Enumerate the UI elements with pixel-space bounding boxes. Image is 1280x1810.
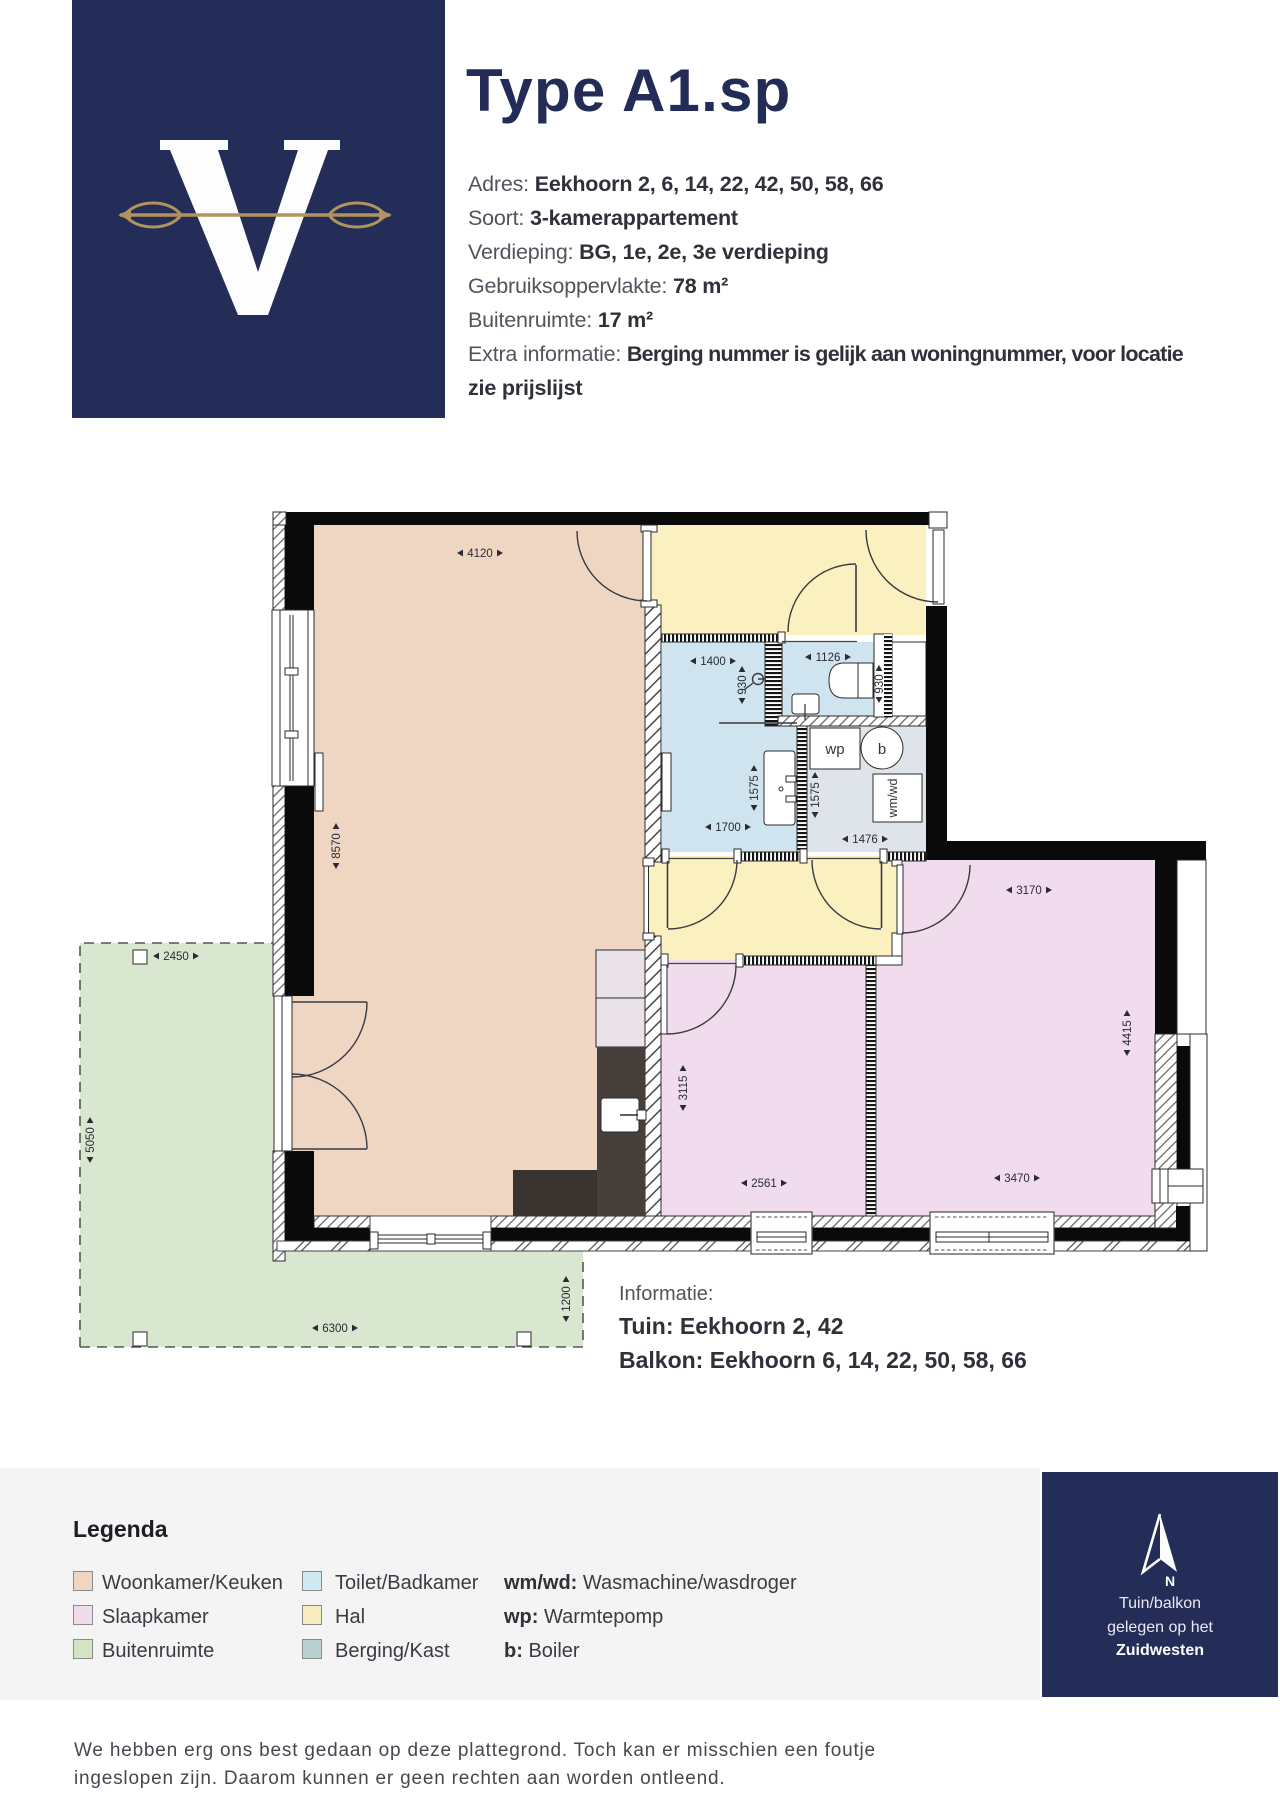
svg-text:1476: 1476 xyxy=(852,834,878,846)
svg-text:8570: 8570 xyxy=(331,833,343,859)
svg-text:3115: 3115 xyxy=(678,1076,690,1101)
svg-text:1200: 1200 xyxy=(561,1286,573,1312)
svg-text:2561: 2561 xyxy=(751,1178,777,1190)
svg-text:930: 930 xyxy=(737,675,749,694)
svg-text:N: N xyxy=(1165,1573,1175,1589)
svg-text:3470: 3470 xyxy=(1004,1173,1030,1185)
svg-text:4415: 4415 xyxy=(1122,1020,1134,1046)
svg-text:b: b xyxy=(878,741,886,758)
svg-text:5050: 5050 xyxy=(85,1127,97,1153)
svg-text:1126: 1126 xyxy=(816,652,841,664)
svg-text:930: 930 xyxy=(874,674,886,693)
svg-text:6300: 6300 xyxy=(322,1323,348,1335)
svg-text:4120: 4120 xyxy=(467,548,493,560)
svg-text:1575: 1575 xyxy=(810,782,822,808)
svg-text:3170: 3170 xyxy=(1016,885,1042,897)
svg-text:2450: 2450 xyxy=(163,951,189,963)
svg-text:1700: 1700 xyxy=(715,822,741,834)
svg-text:1575: 1575 xyxy=(749,775,761,801)
svg-text:wp: wp xyxy=(824,741,844,758)
svg-text:wm/wd: wm/wd xyxy=(886,779,900,819)
svg-text:1400: 1400 xyxy=(700,656,726,668)
